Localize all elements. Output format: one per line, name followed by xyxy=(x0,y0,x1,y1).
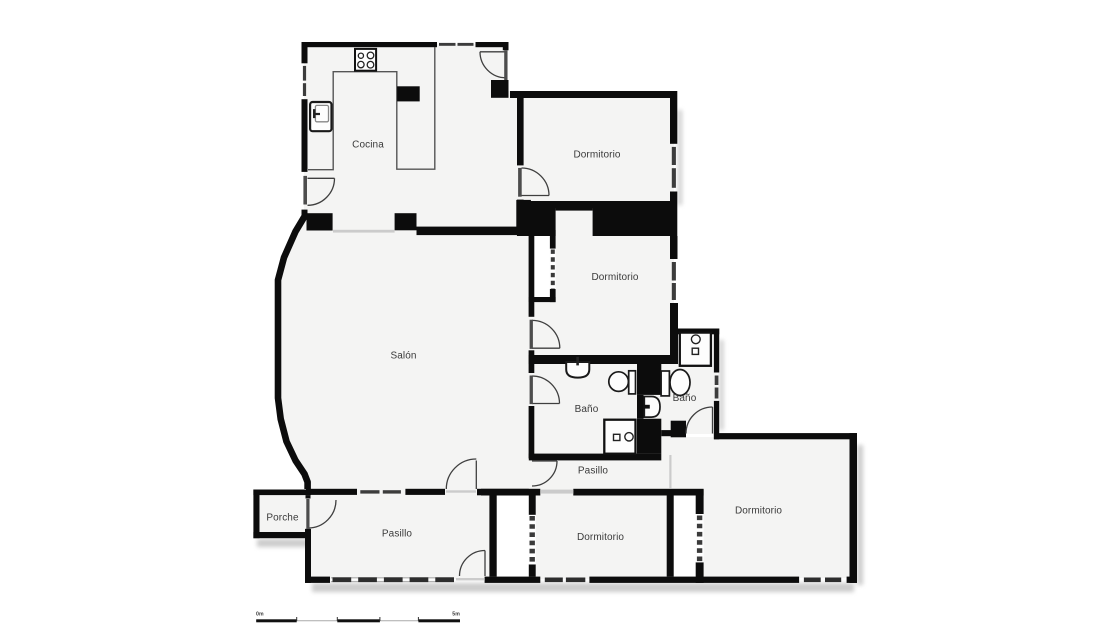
svg-text:Dormitorio: Dormitorio xyxy=(577,532,624,543)
svg-text:Dormitorio: Dormitorio xyxy=(591,272,638,283)
svg-text:5m: 5m xyxy=(452,612,460,618)
svg-text:Dormitorio: Dormitorio xyxy=(735,506,782,517)
svg-text:Pasillo: Pasillo xyxy=(382,529,412,540)
svg-text:Baño: Baño xyxy=(673,393,697,404)
svg-text:Porche: Porche xyxy=(266,513,299,524)
svg-text:Baño: Baño xyxy=(575,404,599,415)
svg-text:Salón: Salón xyxy=(390,351,416,362)
svg-text:0m: 0m xyxy=(256,612,264,618)
svg-text:Dormitorio: Dormitorio xyxy=(573,150,620,161)
svg-text:Cocina: Cocina xyxy=(352,139,384,150)
svg-text:Pasillo: Pasillo xyxy=(578,466,608,477)
